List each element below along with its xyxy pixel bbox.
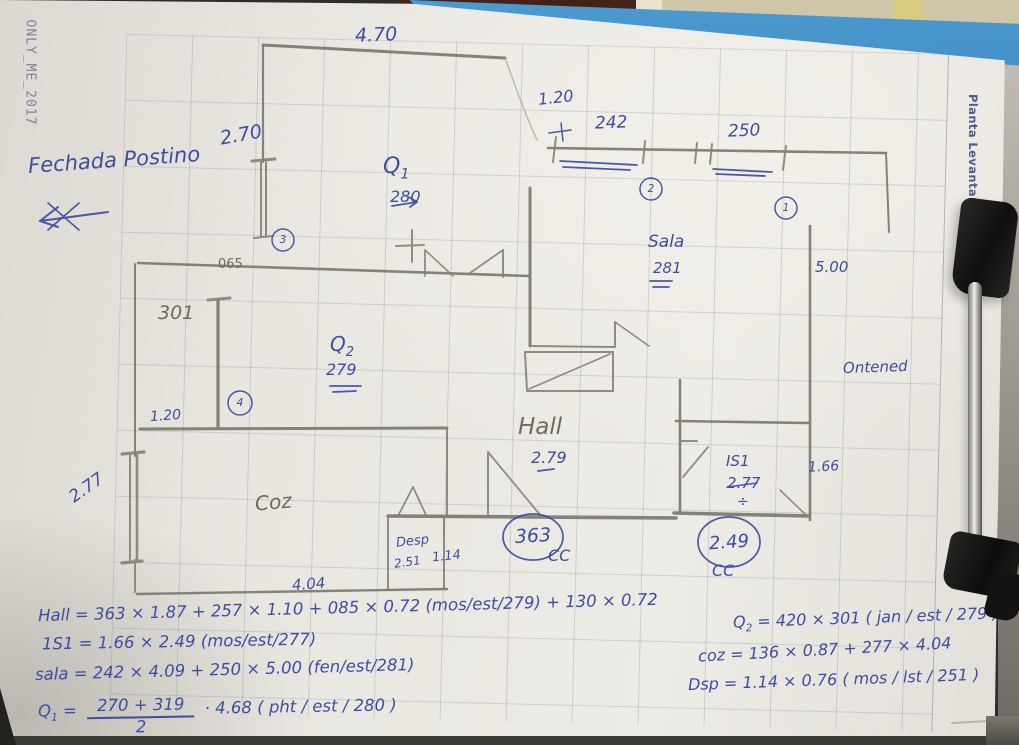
- room-label-is1: IS1: [726, 454, 750, 469]
- watermark-text: ONLY_ME_2017: [23, 20, 38, 160]
- room-label-hall: Hall: [518, 416, 562, 439]
- photo-of-floor-plan-sketch: ONLY_ME_2017 Planta Levantamento Fechada…: [0, 0, 1019, 745]
- circled-dim-249: 2.49: [700, 530, 757, 555]
- cc-label-left: CC: [548, 548, 570, 564]
- circle-marker-2: 2: [645, 183, 657, 195]
- room-label-q1: Q1: [383, 156, 409, 182]
- dim-is1-width: 1.66: [808, 459, 840, 475]
- clip-metal-rod: [968, 282, 982, 564]
- dim-left-opening: 1.20: [150, 408, 182, 424]
- dim-left-window: 2.77: [67, 471, 108, 507]
- circled-dim-363: 363: [505, 524, 560, 549]
- room-label-yard: Ontened: [843, 359, 908, 376]
- room-is1-divide-sign: ÷: [737, 495, 749, 509]
- dim-bottom-width: 4.04: [292, 576, 326, 593]
- dim-window1: 250: [728, 122, 761, 140]
- room-desp-height: 2.51: [393, 554, 421, 570]
- room-label-sala: Sala: [648, 234, 684, 251]
- dim-desp-door: 1.14: [431, 549, 461, 565]
- dim-top-width: 4.70: [355, 25, 398, 45]
- dim-wall-065: 065: [218, 258, 243, 271]
- room-sala-height: 281: [653, 261, 682, 276]
- clip-handle-top: [950, 197, 1019, 299]
- circle-marker-3: 3: [277, 234, 289, 246]
- room-label-coz: Coz: [254, 490, 292, 513]
- cc-label-right: CC: [712, 563, 734, 579]
- dim-wall-301: 301: [158, 304, 194, 323]
- room-hall-height: 2.79: [531, 450, 567, 466]
- room-label-desp: Desp: [395, 533, 429, 549]
- graph-paper-sheet: ONLY_ME_2017 Planta Levantamento Fechada…: [0, 0, 1019, 745]
- room-q1-height: 280: [390, 189, 421, 205]
- room-label-q2: Q2: [330, 334, 354, 359]
- room-is1-height: 2.77: [727, 476, 760, 491]
- formula-q1: Q1 = 270 + 3192 · 4.68 ( pht / est / 280…: [38, 687, 397, 731]
- dim-window2: 242: [595, 114, 628, 132]
- bottom-right-corner-shadow: [986, 716, 1019, 745]
- dim-top-right-opening: 1.20: [537, 88, 574, 108]
- circle-marker-4: 4: [234, 396, 246, 409]
- table-edge: [0, 736, 1019, 745]
- circle-marker-1: 1: [780, 202, 792, 214]
- room-q2-height: 279: [326, 362, 357, 378]
- dim-right-wall: 5.00: [815, 260, 848, 275]
